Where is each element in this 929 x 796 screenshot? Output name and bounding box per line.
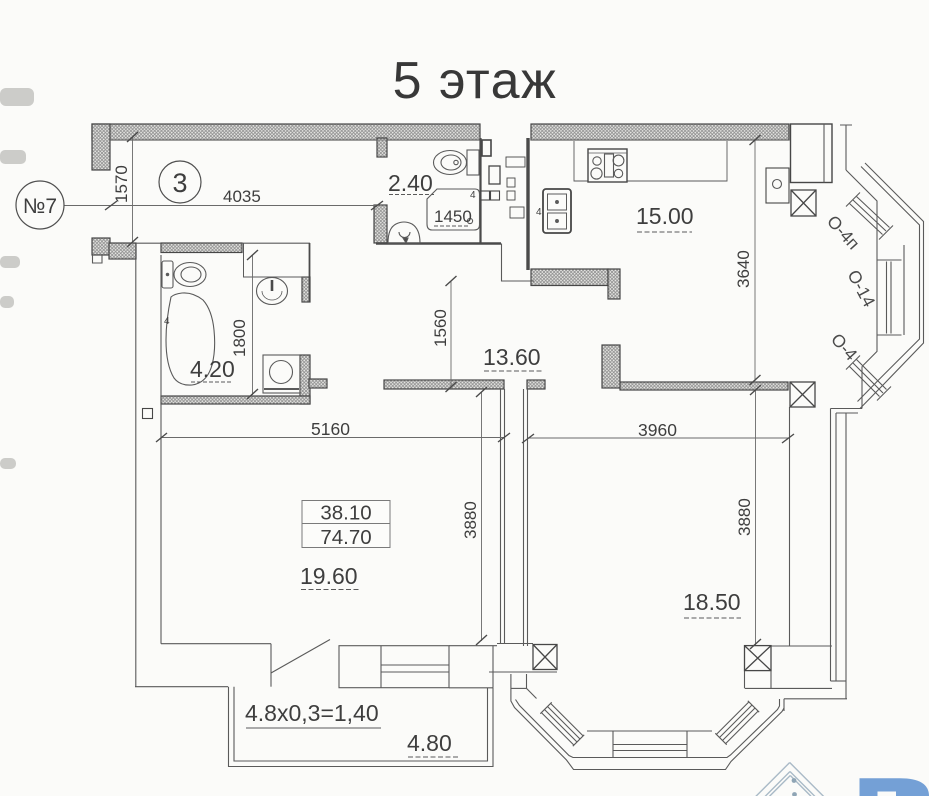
svg-text:4.80: 4.80: [407, 730, 452, 756]
svg-text:1570: 1570: [112, 165, 131, 203]
svg-text:4: 4: [470, 190, 476, 201]
svg-text:13.60: 13.60: [483, 344, 541, 370]
svg-text:5160: 5160: [311, 419, 350, 439]
svg-text:4.20: 4.20: [190, 356, 235, 382]
svg-text:№7: №7: [23, 195, 57, 218]
svg-text:4.8x0,3=1,40: 4.8x0,3=1,40: [245, 700, 379, 726]
svg-text:3880: 3880: [735, 498, 754, 536]
svg-text:15.00: 15.00: [636, 203, 694, 229]
svg-text:5 этаж: 5 этаж: [393, 52, 558, 110]
svg-text:1450: 1450: [434, 207, 472, 226]
svg-text:4035: 4035: [223, 187, 261, 206]
svg-text:О-14: О-14: [843, 266, 879, 310]
svg-text:2.40: 2.40: [388, 170, 433, 196]
svg-text:74.70: 74.70: [320, 526, 371, 549]
svg-text:38.10: 38.10: [320, 502, 371, 525]
svg-text:1560: 1560: [431, 309, 450, 347]
svg-text:4: 4: [536, 207, 542, 218]
svg-text:3880: 3880: [461, 501, 480, 539]
svg-text:О-4п: О-4п: [823, 211, 864, 253]
svg-text:3640: 3640: [734, 250, 753, 288]
svg-text:3960: 3960: [638, 420, 677, 440]
svg-text:4: 4: [164, 316, 170, 327]
svg-text:18.50: 18.50: [683, 589, 741, 615]
svg-text:3: 3: [172, 168, 187, 198]
svg-text:1800: 1800: [230, 319, 249, 357]
svg-text:19.60: 19.60: [300, 563, 358, 589]
